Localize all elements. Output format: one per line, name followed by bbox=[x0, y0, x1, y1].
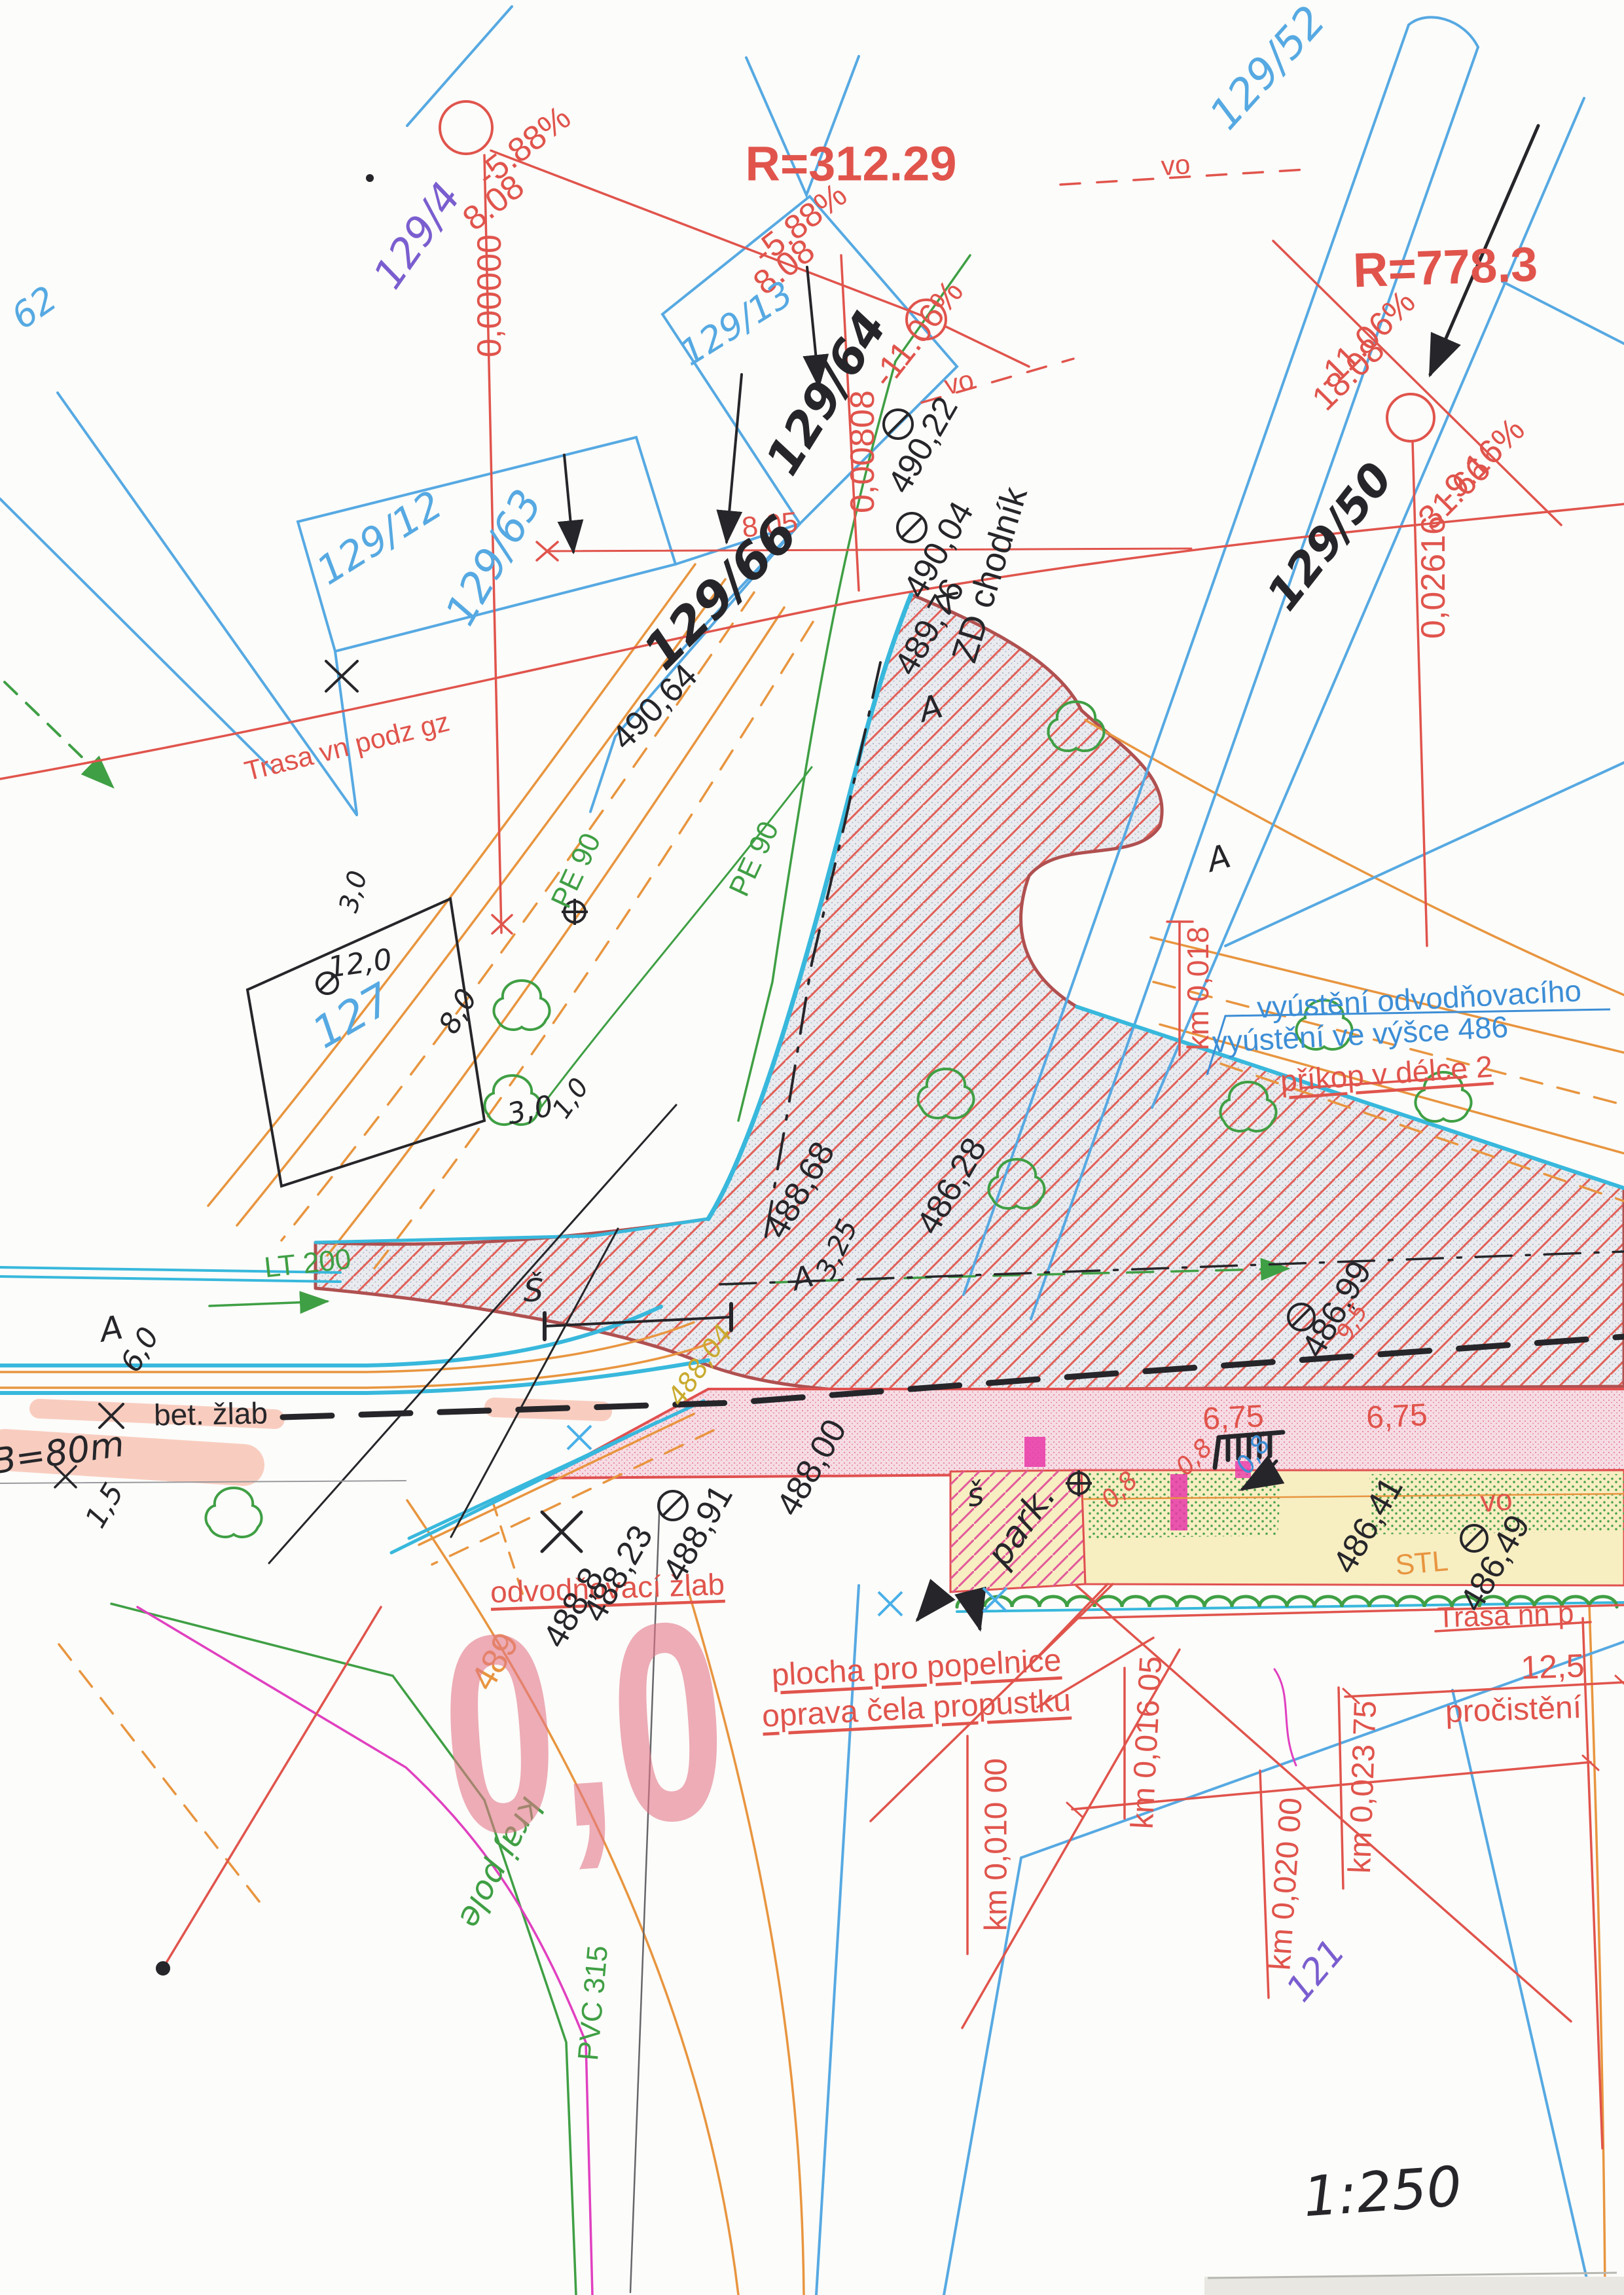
magenta-patch bbox=[1024, 1437, 1045, 1467]
map-label: 129/4 bbox=[364, 174, 470, 297]
map-label: Trasa nn p bbox=[1437, 1597, 1574, 1634]
map-label: Trasa vn podz gz bbox=[242, 706, 452, 786]
map-label: km 0,010 00 bbox=[979, 1758, 1014, 1931]
map-label: pročistění bbox=[1445, 1690, 1582, 1729]
map-label: 3,0 bbox=[334, 867, 374, 915]
map-label: 6,75 bbox=[1365, 1398, 1428, 1436]
survey-dot bbox=[156, 1961, 170, 1976]
map-label: PE 90 bbox=[723, 816, 785, 901]
map-label: PVC 315 bbox=[572, 1944, 614, 2062]
map-label: 1,5 bbox=[79, 1477, 130, 1534]
map-label: R=312.29 bbox=[746, 137, 957, 191]
map-label: 490,64 bbox=[604, 657, 704, 757]
map-label: km 0,018 bbox=[1181, 926, 1215, 1050]
map-label: A bbox=[1201, 837, 1235, 880]
vertex-circle bbox=[440, 101, 492, 154]
map-label: 62 bbox=[4, 278, 64, 337]
map-label: 129/12 bbox=[309, 482, 450, 594]
x-mark bbox=[326, 661, 357, 691]
map-label: PE 90 bbox=[545, 828, 607, 913]
map-label: 8,0 bbox=[432, 983, 484, 1039]
map-label: 129/52 bbox=[1200, 0, 1335, 139]
vertex-circle bbox=[1387, 394, 1434, 441]
slashed-circle-point bbox=[897, 513, 926, 542]
building-outline bbox=[247, 899, 484, 1186]
survey-dot bbox=[366, 174, 374, 182]
map-label: 12,5 bbox=[1520, 1647, 1585, 1686]
map-label: km 0,016 05 bbox=[1125, 1655, 1169, 1830]
map-label: 129/50 bbox=[1257, 454, 1403, 621]
x-mark bbox=[542, 1512, 581, 1551]
map-canvas: R=312.29-5.88%8.080,00000-5.88%8.08-11.0… bbox=[0, 0, 1624, 2295]
map-label: vo bbox=[1160, 149, 1191, 181]
map-label: km 0,020 00 bbox=[1262, 1796, 1308, 1971]
scan-paper-edge bbox=[1204, 2273, 1624, 2295]
map-label: vo bbox=[941, 364, 977, 401]
map-label: 6,75 bbox=[1202, 1399, 1265, 1437]
slashed-circle-point bbox=[659, 1491, 687, 1520]
map-label: R=778.3 bbox=[1352, 237, 1539, 298]
map-label: 0,00808 bbox=[844, 390, 882, 513]
map-label: Š bbox=[524, 1272, 543, 1309]
map-label: 129/13 bbox=[673, 273, 801, 374]
map-label: 0,0 bbox=[433, 1562, 735, 1895]
map-label: 3,0 bbox=[504, 1089, 556, 1131]
map-label: A bbox=[95, 1308, 126, 1350]
map-label: 1:250 bbox=[1301, 2154, 1464, 2230]
map-label: 0,02616 bbox=[1415, 516, 1453, 639]
map-label: 0,00000 bbox=[471, 234, 509, 357]
map-label: STL bbox=[1394, 1545, 1450, 1581]
map-label: bet. žlab bbox=[154, 1396, 268, 1432]
map-label: 129/66 bbox=[632, 504, 808, 681]
map-label: km 0,023 75 bbox=[1343, 1700, 1383, 1874]
site-plan-scan: R=312.29-5.88%8.080,00000-5.88%8.08-11.0… bbox=[0, 0, 1624, 2295]
map-label: 490,22 bbox=[880, 391, 965, 500]
magenta-patch bbox=[1170, 1474, 1187, 1530]
